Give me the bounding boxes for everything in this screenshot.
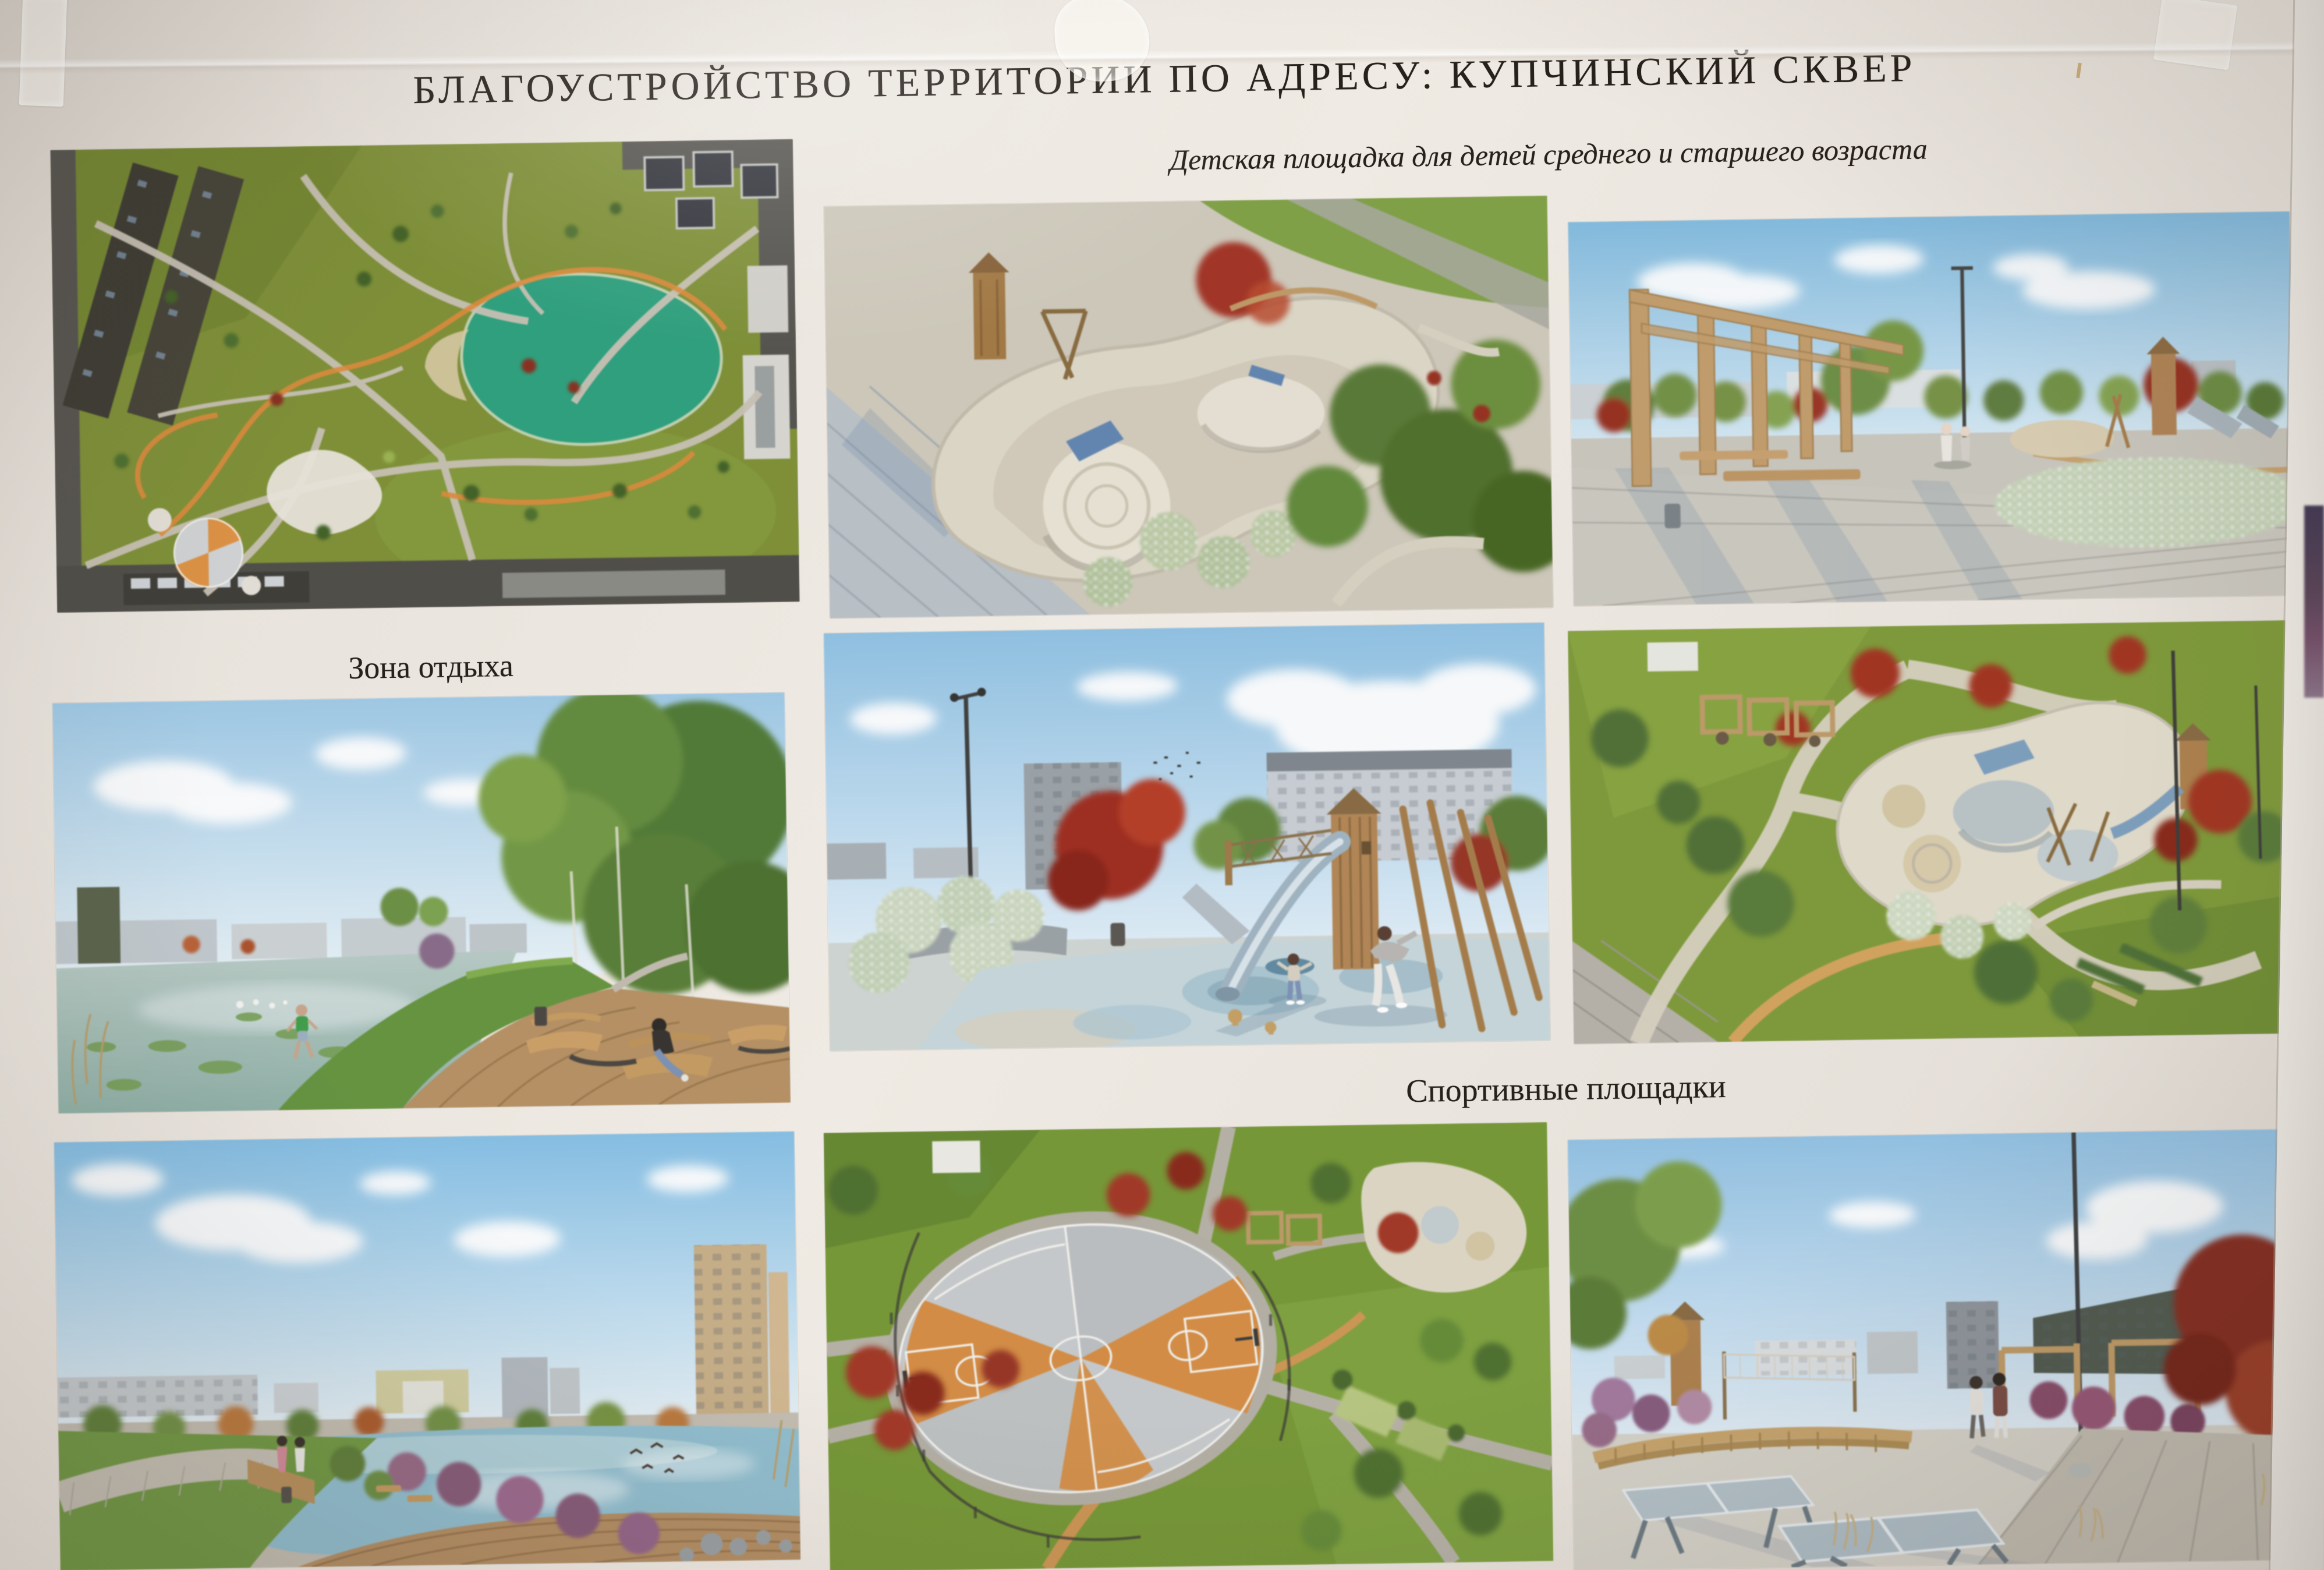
masterplan-graphic	[50, 139, 800, 613]
caption-rest-zone: Зона отдыха	[291, 646, 571, 687]
rendering-pergola-walkway-view	[1568, 211, 2295, 606]
slide-playground-graphic	[824, 623, 1551, 1051]
pergola-walkway-graphic	[1568, 211, 2295, 606]
loops-aerial-graphic	[1568, 620, 2295, 1044]
tape-top-right	[2153, 0, 2237, 70]
wooden-tower	[968, 252, 1010, 360]
rendering-lake-boardwalk-benches	[52, 692, 791, 1114]
rendering-playground-loops-aerial	[1568, 620, 2295, 1044]
court-aerial-graphic	[823, 1122, 1553, 1570]
wall-mark	[2076, 63, 2082, 79]
rendering-pond-promenade-view	[54, 1131, 801, 1570]
caption-playground: Детская площадка для детей среднего и ст…	[1141, 132, 1957, 178]
poster-paper: БЛАГОУСТРОЙСТВО ТЕРРИТОРИИ ПО АДРЕСУ: КУ…	[0, 0, 2324, 1570]
rendering-playground-mounds-aerial	[824, 196, 1553, 618]
rendering-tube-slide-tower-playground	[824, 623, 1551, 1051]
tape-top-left	[19, 0, 68, 107]
east-buildings	[741, 266, 790, 459]
photographed-poster: БЛАГОУСТРОЙСТВО ТЕРРИТОРИИ ПО АДРЕСУ: КУ…	[0, 0, 2324, 1570]
rest-zone-graphic	[52, 692, 791, 1114]
caption-sports: Спортивные площадки	[1327, 1067, 1805, 1111]
adjacent-poster-sliver	[2304, 505, 2324, 698]
slide-tower	[1326, 788, 1384, 970]
plaza-graphic	[1568, 1129, 2297, 1570]
rendering-site-masterplan-aerial	[50, 139, 800, 613]
rendering-round-basketball-court-aerial	[823, 1122, 1553, 1570]
pond-promenade-graphic	[54, 1131, 801, 1570]
playground-aerial-graphic	[824, 196, 1553, 618]
rendering-table-tennis-plaza-view	[1568, 1129, 2297, 1570]
